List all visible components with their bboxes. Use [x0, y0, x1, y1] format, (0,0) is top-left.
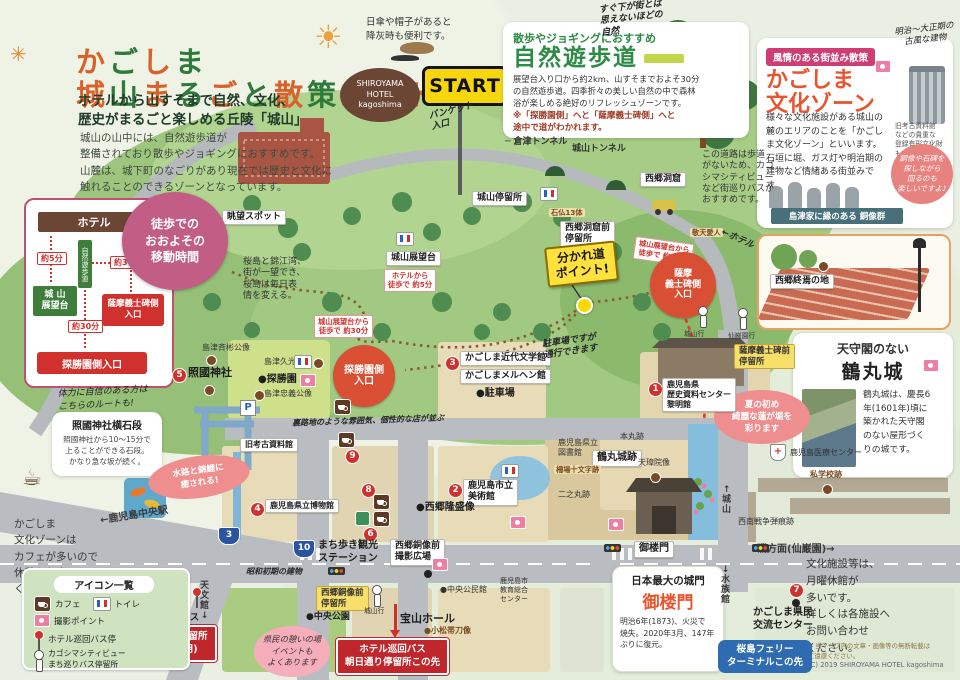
map-dotb-icon — [313, 358, 324, 369]
map-cam-icon — [510, 516, 526, 529]
map-pinkbub-label: 県民の憩いの場 イベントも よくあります — [254, 626, 330, 677]
map-shield-label: 3 — [218, 527, 240, 545]
map-cam-icon — [300, 374, 316, 387]
map-wl-label: かごしま近代文学館 — [460, 351, 551, 366]
map-shield-label: 10 — [293, 540, 315, 558]
map-busw-icon — [372, 585, 382, 607]
hotel-bus-stop-icon — [34, 630, 44, 648]
map-wl-label: 鶴丸城跡 — [592, 450, 642, 467]
map-wl-label: 旧考古資料館 — [240, 438, 298, 452]
map-plain-label: 本丸跡 — [620, 432, 644, 442]
map-tl-icon — [328, 567, 345, 575]
walk-5min-tag: 約5分 — [37, 252, 67, 265]
map-name-label: ●探勝園 — [258, 374, 297, 387]
map-wl-label: 西郷洞窟 — [640, 172, 686, 187]
nature-trail-ribbon: 自然遊歩道 — [78, 240, 92, 288]
map-yl-label: 西郷銅像前 停留所 — [316, 586, 369, 611]
culture-panel-body: 様々な文化施設がある城山の麓のエリアのことを「かごしま文化ゾーン」といいます。石… — [766, 112, 888, 193]
trail-panel-title: 自然遊歩道 — [513, 46, 739, 71]
nature-trail-panel: 散歩やジョギングにおすすめ 自然遊歩道 展望台入り口から約2km、山すそまでおよ… — [503, 22, 749, 138]
map-num-label: 2 — [448, 483, 463, 498]
bush-icon — [771, 244, 797, 270]
intro-text: 城山の山中には、自然遊歩道が 整備されており散歩やジョギングにおすすめです。 山… — [80, 130, 332, 195]
map-rl-label: ホテル巡回バス 朝日通り停留所この先 — [336, 638, 449, 675]
map-rcirc-label: 探勝園側 入口 — [333, 345, 395, 407]
old-building-illustration — [909, 66, 945, 124]
map-busw-icon — [738, 308, 748, 330]
walk-observatory-box: 城 山 展望台 — [33, 286, 77, 316]
map-cafe-icon — [334, 399, 351, 415]
map-wc-icon — [501, 464, 519, 478]
map-name-label: 宝山ホール — [400, 612, 455, 626]
map-roadv-label: ↑ 城 山 — [722, 486, 731, 516]
map-num-label: 1 — [648, 382, 663, 397]
walking-time-badge: 徒歩での おおよその 移動時間 — [122, 192, 228, 290]
stone-steps-panel: 照國神社横石段 照國神社から10〜15分で 上ることができる石段。 かなり急な坂… — [52, 412, 162, 476]
stone-steps-body: 照國神社から10〜15分で 上ることができる石段。 かなり急な坂が続く。 — [58, 434, 156, 467]
map-plain-label: 城山トンネル — [572, 144, 626, 155]
route-dotted-line — [84, 290, 86, 348]
icon-legend: アイコン一覧 カフェ トイレ 撮影ポイント ホテル巡回バス停 カゴシマシティビュ… — [22, 568, 190, 670]
gas-lamp-icon — [918, 246, 921, 312]
cafe-icon — [34, 596, 51, 612]
legend-photo-label: 撮影ポイント — [54, 615, 105, 627]
map-wl-label: 鹿児島県 歴史資料センター 黎明館 — [662, 378, 736, 412]
map-plain-label: この道路は歩道 がないため、カゴ シマシティビュー など街巡りバスが おすすめで… — [702, 150, 774, 206]
map-busw-icon — [698, 306, 708, 328]
route-dotted-line — [130, 270, 132, 292]
map-wl-label: 眺望スポット — [222, 210, 286, 225]
map-num-label: 9 — [345, 449, 360, 464]
map-dotblk-icon — [424, 570, 432, 578]
map-wc-icon — [396, 232, 414, 246]
map-tiny-label: 城山行 — [684, 330, 704, 338]
map-name-label: まち歩き観光 ステーション — [318, 540, 378, 565]
culture-zone-panel: 風情のある街並み散策 かごしま 文化ゾーン 明治〜大正期の 古風な建物 旧考古資… — [757, 38, 953, 228]
map-cam-icon — [608, 518, 624, 531]
map-dotb-icon — [204, 385, 215, 396]
legend-cafe-row: カフェ トイレ — [34, 596, 140, 612]
map-name-label: ●駐車場 — [476, 388, 515, 401]
map-tanlabel-label: 柵場十文字跡 — [554, 465, 601, 474]
coffee-icon: ☕ — [22, 466, 42, 491]
trail-panel-body: 展望台入り口から約2km、山すそまでおよそ30分 の自然遊歩道。四季折々の美しい… — [513, 73, 739, 109]
map-plain-label: 二之丸跡 — [558, 490, 590, 500]
walk-gishi-entrance-box: 薩摩義士碑側 入口 — [102, 294, 164, 326]
map-num-label: 4 — [250, 502, 265, 517]
legend-cityview-row: カゴシマシティビュー まち巡りバス停留所 — [34, 648, 126, 670]
walk-30min-tag: 約30分 — [68, 320, 103, 333]
map-num-label: 5 — [172, 368, 187, 383]
map-plain-label: 西南戦争弾痕跡 — [738, 517, 794, 527]
map-plain-label: 島津斉彬公像 — [202, 343, 250, 353]
map-hosp-label: + — [770, 444, 786, 461]
map-roadv-label: ↓ 水 族 館 — [721, 566, 730, 606]
map-wl-label: 御楼門 — [634, 541, 674, 558]
map-dotb-icon — [650, 472, 661, 483]
trail-title-text: 自然遊歩道 — [513, 46, 638, 71]
map-name-label: ●西郷隆盛像 — [416, 502, 475, 515]
map-cafe-icon — [338, 432, 355, 448]
sun-hat-note: 日傘や帽子があると 降灰時も便利です。 — [366, 16, 452, 45]
legend-toilet-label: トイレ — [115, 598, 141, 610]
map-num-label: 3 — [445, 356, 460, 371]
legend-cafe-label: カフェ — [55, 598, 81, 610]
copyright-note: ◆ 当マップ内の文章・画像等の無断転載は ご遠慮ください。 — [808, 642, 930, 661]
map-hand-label: 昭和初期の建物 — [246, 567, 302, 577]
city-view-bus-stop-icon — [34, 650, 44, 668]
map-dotb-icon — [818, 261, 829, 272]
map-rtag-label: ホテルから 徒歩で 約5分 — [384, 269, 436, 292]
bush-icon — [799, 250, 817, 268]
map-plain-label: ─ 倉津トンネル — [505, 137, 567, 148]
subtitle: ホテルから山すそまで自然、文化、 歴史がまるごと楽しめる丘陵「城山」 — [78, 92, 308, 130]
statues-caption: 島津家に縁のある 銅像群 — [771, 208, 903, 224]
copyright-line: (C) 2019 SHIROYAMA HOTEL kagoshima — [808, 661, 944, 669]
statue-hunt-bubble: 銅像や石碑を 探しながら 回るのも 楽しいですよ♪ — [891, 144, 953, 204]
map-tanlabel-label: 石仏13体 — [549, 208, 585, 217]
camera-icon — [875, 60, 891, 73]
map-redarrow-icon — [394, 604, 397, 630]
map-name-label: 照國神社 — [188, 366, 232, 380]
map-busr-icon — [192, 587, 202, 609]
map-cam-icon — [432, 558, 448, 571]
map-plain-label: ●中央公民館 — [440, 585, 487, 595]
map-park-label: P — [240, 400, 256, 416]
map-canvas: ✳ かごしま 城山まるごと散策ガイド ホテルから山すそまで自然、文化、 歴史がま… — [0, 0, 960, 680]
goromon-panel: 日本最大の城門 御楼門 明治6年(1873)、火災で 焼失。2020年3月、14… — [612, 566, 724, 672]
map-browntext-label: ●小松帯刀像 — [424, 626, 471, 636]
start-sign: START — [422, 66, 508, 106]
map-wl-label: 鹿児島県立博物館 — [265, 499, 339, 513]
bronze-statues-illustration — [769, 182, 889, 208]
map-wl-label: 城山展望台 — [386, 251, 441, 266]
legend-title: アイコン一覧 — [54, 576, 154, 593]
trail-dash-icon — [644, 54, 684, 63]
sun-icon: ☀ — [314, 18, 343, 56]
goromon-body: 明治6年(1873)、火災で 焼失。2020年3月、147年 ぶりに復元。 — [620, 616, 716, 651]
camera-icon — [923, 359, 939, 372]
legend-hotelbus-row: ホテル巡回バス停 — [34, 630, 116, 648]
trail-panel-note: ※「探勝園側」へと「薩摩義士碑側」へと 途中で道がわかれます。 — [513, 110, 739, 134]
map-tiny-label: 仙巌園行 — [728, 332, 755, 340]
map-tl-icon — [752, 544, 769, 552]
culture-panel-tag: 風情のある街並み散策 — [766, 48, 875, 66]
map-dotblk-icon — [792, 599, 800, 607]
map-rtag-label: 城山展望台から 徒歩で 約30分 — [314, 315, 373, 338]
map-fork-icon — [576, 297, 593, 314]
map-plain-label: 桜島と錦江湾、 街が一望でき、 桜島は毎日表 情を変える。 — [243, 257, 306, 302]
toilet-icon — [93, 597, 111, 611]
map-wc-icon — [540, 187, 558, 201]
map-info-icon — [355, 511, 370, 526]
map-plain-label: 鹿児島医療センター — [790, 448, 862, 458]
map-tiny-label: 城山行 — [364, 607, 384, 615]
hat-sunglasses-icon — [400, 42, 434, 54]
map-ysign-label: 分かれ道 ポイント! — [544, 240, 619, 287]
map-dotb-icon — [206, 355, 217, 366]
map-tanlabel-label: 敬天愛人 — [690, 228, 723, 237]
map-cafe-icon — [373, 494, 390, 510]
map-plain-label: 島津忠義公像 — [264, 389, 312, 399]
map-num-label: 7 — [789, 583, 804, 598]
map-wc-icon — [294, 355, 312, 369]
map-wl-label: 西郷終焉の地 — [770, 274, 834, 289]
legend-cityview-label: カゴシマシティビュー まち巡りバス停留所 — [48, 648, 126, 670]
map-tl-icon — [604, 544, 621, 552]
map-name-label: かごしま県民 交流センター — [753, 607, 813, 632]
map-bluebox-label: 桜島フェリー ターミナルこの先 — [718, 640, 812, 673]
walk-tansho-entrance-box: 探勝園側入口 — [37, 352, 147, 374]
hotel-speech-bubble: SHIROYAMA HOTEL kagoshima — [340, 68, 420, 122]
map-name-label: ●中央公園 — [306, 612, 350, 623]
map-plain-label: 天璋院像 — [638, 458, 670, 468]
stone-steps-hand-note: 体力に自信のある方は こちらのルートも! — [57, 384, 148, 414]
goromon-subtitle: 日本最大の城門 — [620, 573, 716, 588]
map-cafe-icon — [373, 511, 390, 527]
map-browntext-label: 私学校跡 — [810, 470, 842, 480]
stone-steps-title: 照國神社横石段 — [58, 417, 156, 432]
map-plain-label: 鹿児島市 教育総合 センター — [500, 577, 528, 603]
camera-icon — [34, 614, 50, 627]
legend-photo-row: 撮影ポイント — [34, 614, 105, 627]
map-hand-label: すぐ下が街とは 思えないほどの 自然 — [598, 0, 664, 39]
tsurumaru-subtitle: 天守閣のない — [801, 340, 945, 357]
goromon-title: 御楼門 — [620, 588, 716, 613]
map-wl-label: かごしまメルヘン館 — [460, 369, 551, 384]
title-sparkle-icon: ✳ — [10, 42, 27, 66]
map-dotb-icon — [822, 484, 833, 495]
tsurumaru-body: 鶴丸城は、慶長6 年(1601年)頃に 築かれた天守閣 のない屋形づく りの城で… — [863, 389, 945, 457]
map-yl-label: 薩摩義士碑前 停留所 — [734, 344, 795, 369]
legend-hotelbus-label: ホテル巡回バス停 — [48, 633, 116, 645]
map-wl-label: 城山停留所 — [472, 191, 527, 206]
